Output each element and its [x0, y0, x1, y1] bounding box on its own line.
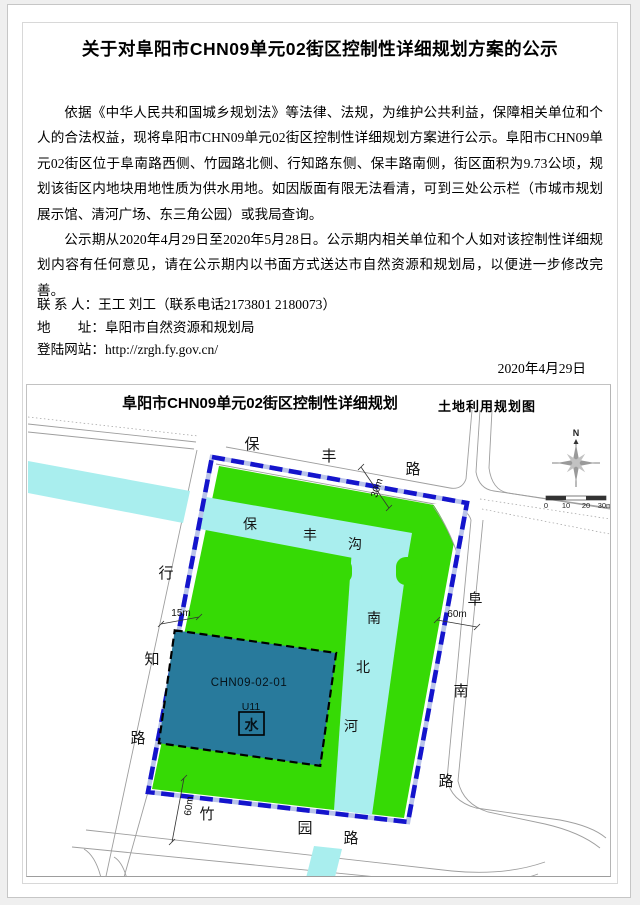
label-baofeng-gou-2: 丰	[303, 527, 317, 543]
road-baofeng-west-edge2	[28, 432, 194, 449]
label-funan-lu-3: 路	[438, 773, 453, 790]
label-nanbei-he-1: 南	[367, 610, 381, 626]
green-fillet-ne	[404, 506, 432, 528]
label-zhuyuan-lu-3: 路	[343, 830, 358, 847]
road-funan-north-east-edge	[489, 410, 610, 509]
road-baofeng-east-dotted2	[482, 509, 610, 534]
scale-tick-0: 0	[544, 501, 548, 510]
paragraph-publicity-period: 公示期从2020年4月29日至2020年5月28日。公示期内相关单位和个人如对该…	[37, 227, 603, 303]
label-funan-lu-1: 阜	[467, 591, 482, 608]
label-funan-lu-2: 南	[453, 683, 468, 700]
contact-block: 联 系 人：王工 刘工（联系电话2173801 2180073） 地 址：阜阳市…	[37, 294, 603, 362]
label-xingzhi-lu-3: 路	[130, 730, 145, 747]
green-fillet-se	[396, 557, 422, 585]
label-xingzhi-lu-1: 行	[158, 565, 173, 582]
parcel-rect	[159, 630, 336, 766]
label-zhuyuan-lu-2: 园	[297, 820, 312, 837]
green-fillet-sw	[322, 559, 352, 583]
water-symbol: 水	[245, 717, 260, 733]
paragraph-legal-basis: 依据《中华人民共和国城乡规划法》等法律、法规，为维护公共利益，保障相关单位和个人…	[37, 100, 603, 227]
compass-north-arrow	[574, 439, 579, 444]
label-xingzhi-lu-2: 知	[144, 651, 159, 668]
road-funan-north-west-edge2	[476, 410, 610, 508]
parcel-code: CHN09-02-01	[211, 677, 287, 689]
dim-label-funan: 60m	[447, 609, 466, 620]
page-title: 关于对阜阳市CHN09单元02街区控制性详细规划方案的公示	[30, 36, 610, 61]
label-baofeng-lu-2: 丰	[321, 448, 336, 465]
road-funan-west-edge2	[458, 520, 600, 848]
road-junction-sw-curve2	[114, 857, 130, 876]
compass-rose: N	[552, 428, 600, 487]
road-funan-north-west-edge	[466, 410, 472, 479]
notice-body: 依据《中华人民共和国城乡规划法》等法律、法规，为维护公共利益，保障相关单位和个人…	[37, 100, 603, 303]
dim-label-xingzhi: 15m	[171, 608, 190, 619]
label-baofeng-gou-1: 保	[243, 516, 257, 532]
label-baofeng-lu-3: 路	[405, 461, 420, 478]
scale-tick-20: 20	[582, 501, 590, 510]
label-zhuyuan-lu-1: 竹	[199, 806, 214, 823]
scale-tick-10: 10	[562, 501, 570, 510]
publish-date: 2020年4月29日	[498, 357, 586, 377]
contact-address-line: 地 址：阜阳市自然资源和规划局	[37, 317, 603, 340]
dim-label-zhuyuan: 60m	[183, 796, 196, 817]
contact-person-line: 联 系 人：王工 刘工（联系电话2173801 2180073）	[37, 294, 603, 317]
baofeng-ditch-west-segment	[28, 461, 190, 523]
label-baofeng-lu-1: 保	[244, 436, 259, 453]
label-nanbei-he-2: 北	[356, 659, 370, 675]
land-use-map: CHN09-02-01 U11 水 15m 30m 60m 60m 保 丰 路 …	[28, 410, 610, 876]
scale-tick-30: 30m	[598, 501, 610, 510]
label-nanbei-he-3: 河	[344, 718, 358, 734]
nanbei-river-south-segment	[306, 846, 342, 876]
label-baofeng-gou-3: 沟	[348, 536, 362, 552]
compass-north-label: N	[573, 428, 580, 438]
road-funan-west-edge	[447, 520, 606, 838]
water-supply-parcel: CHN09-02-01 U11 水	[159, 630, 336, 766]
road-junction-sw-curve1	[84, 849, 104, 876]
